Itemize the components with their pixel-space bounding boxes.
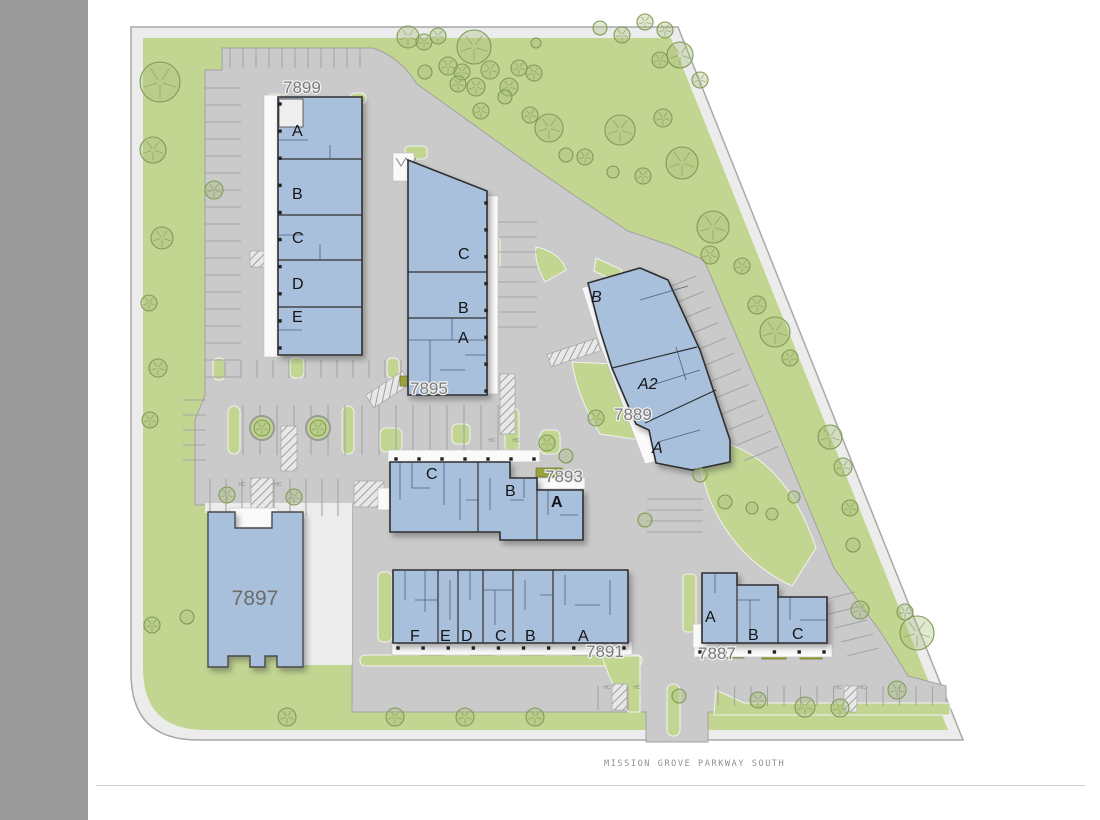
tree-icon <box>593 21 607 35</box>
tree-icon <box>614 27 630 43</box>
tree-icon <box>672 689 686 703</box>
column-dot <box>417 457 420 460</box>
column-dot <box>773 650 776 653</box>
hc-stall-label: HC <box>512 438 520 444</box>
tree-icon <box>577 149 593 165</box>
tree-icon <box>450 76 466 92</box>
column-dot <box>278 319 281 322</box>
tree-icon <box>750 692 766 708</box>
tree-icon <box>278 708 296 726</box>
tree-icon <box>254 420 270 436</box>
building-7895-number-label: 7895 <box>410 379 448 398</box>
tree-icon <box>149 359 167 377</box>
tree-icon <box>140 137 166 163</box>
tree-icon <box>588 410 604 426</box>
column-dot <box>278 129 281 132</box>
building-7897-number-label: 7897 <box>232 587 279 610</box>
column-dot <box>472 646 475 649</box>
tree-icon <box>498 90 512 104</box>
column-dot <box>798 650 801 653</box>
column-dot <box>484 362 487 365</box>
tree-icon <box>897 604 913 620</box>
column-dot <box>484 282 487 285</box>
unit-label: D <box>461 628 473 645</box>
site-plan-drawing: HCHCHCHCHCHCHCHC 7899 7895 7889 7893 789… <box>0 0 1100 820</box>
tree-icon <box>539 435 555 451</box>
tree-icon <box>693 468 707 482</box>
unit-label: A2 <box>637 376 658 393</box>
tree-icon <box>559 148 573 162</box>
tree-icon <box>746 502 758 514</box>
column-dot <box>497 646 500 649</box>
unit-label: F <box>410 628 420 645</box>
column-dot <box>509 457 512 460</box>
tree-icon <box>635 168 651 184</box>
tree-icon <box>697 211 729 243</box>
unit-label: E <box>440 628 451 645</box>
hc-stall-label: HC <box>603 685 611 691</box>
unit-label: C <box>495 628 507 645</box>
building-7891-footprint <box>393 570 628 643</box>
tree-icon <box>286 489 302 505</box>
tree-icon <box>522 107 538 123</box>
tree-icon <box>654 109 672 127</box>
building-7895-footprint <box>408 160 487 395</box>
column-dot <box>278 292 281 295</box>
tree-icon <box>666 147 698 179</box>
tree-icon <box>531 38 541 48</box>
tree-icon <box>831 699 849 717</box>
column-dot <box>484 255 487 258</box>
column-dot <box>547 646 550 649</box>
unit-label: A <box>578 628 589 645</box>
column-dot <box>396 646 399 649</box>
unit-label: B <box>458 300 469 317</box>
building-7893-number-label: 7893 <box>545 467 583 486</box>
tree-icon <box>818 425 842 449</box>
unit-label: A <box>292 123 303 140</box>
building-7887-number-label: 7887 <box>698 644 736 663</box>
street-name-label: MISSION GROVE PARKWAY SOUTH <box>604 759 785 769</box>
tree-icon <box>760 317 790 347</box>
tree-icon <box>842 500 858 516</box>
building-7899 <box>264 95 362 357</box>
tree-icon <box>638 513 652 527</box>
unit-label: C <box>792 626 804 643</box>
tree-icon <box>219 487 235 503</box>
tree-icon <box>748 296 766 314</box>
tree-icon <box>456 708 474 726</box>
hc-stall-label: HC <box>858 685 866 691</box>
tree-icon <box>467 78 485 96</box>
tree-icon <box>526 708 544 726</box>
column-dot <box>484 309 487 312</box>
column-dot <box>278 346 281 349</box>
building-7899-footprint <box>278 97 362 355</box>
tree-icon <box>667 42 693 68</box>
tree-icon <box>142 412 158 428</box>
column-dot <box>522 646 525 649</box>
tree-icon <box>782 350 798 366</box>
tree-icon <box>607 166 619 178</box>
site-plan-page: HCHCHCHCHCHCHCHC 7899 7895 7889 7893 789… <box>0 0 1100 820</box>
unit-label: A <box>458 330 469 347</box>
column-dot <box>532 457 535 460</box>
tree-icon <box>788 491 800 503</box>
tree-icon <box>205 181 223 199</box>
tree-icon <box>701 246 719 264</box>
column-dot <box>278 238 281 241</box>
unit-label: C <box>426 466 438 483</box>
tree-icon <box>851 601 869 619</box>
building-7899-number-label: 7899 <box>283 78 321 97</box>
column-dot <box>278 102 281 105</box>
tree-icon <box>766 508 778 520</box>
tree-icon <box>637 14 653 30</box>
plaza-walk <box>300 507 352 665</box>
column-dot <box>484 201 487 204</box>
column-dot <box>394 457 397 460</box>
tree-icon <box>652 52 668 68</box>
unit-label: C <box>458 246 470 263</box>
tree-icon <box>386 708 404 726</box>
tree-icon <box>657 22 673 38</box>
tree-icon <box>605 115 635 145</box>
tree-icon <box>397 26 419 48</box>
tree-icon <box>834 458 852 476</box>
tree-icon <box>141 295 157 311</box>
tree-icon <box>473 103 489 119</box>
tree-icon <box>481 61 499 79</box>
unit-label: E <box>292 309 303 326</box>
tree-icon <box>535 114 563 142</box>
tree-icon <box>846 538 860 552</box>
tree-icon <box>526 65 542 81</box>
column-dot <box>278 157 281 160</box>
column-dot <box>421 646 424 649</box>
tree-icon <box>144 617 160 633</box>
column-dot <box>440 457 443 460</box>
column-dot <box>748 650 751 653</box>
building-7889-number-label: 7889 <box>614 405 652 424</box>
unit-label: D <box>292 276 304 293</box>
column-dot <box>484 336 487 339</box>
building-7895 <box>393 153 498 395</box>
tree-icon <box>457 30 491 64</box>
column-dot <box>463 457 466 460</box>
hc-stall-label: HC <box>834 685 842 691</box>
unit-label: B <box>748 627 759 644</box>
column-dot <box>484 389 487 392</box>
column-dot <box>278 211 281 214</box>
column-dot <box>278 265 281 268</box>
hc-stall-label: HC <box>238 482 246 488</box>
tree-icon <box>559 449 573 463</box>
tree-icon <box>140 62 180 102</box>
column-dot <box>486 457 489 460</box>
unit-label: A <box>705 609 716 626</box>
tree-icon <box>180 610 194 624</box>
hc-stall-label: HC <box>488 438 496 444</box>
tree-icon <box>692 72 708 88</box>
unit-label: B <box>505 483 516 500</box>
unit-label: C <box>292 230 304 247</box>
tree-icon <box>418 65 432 79</box>
unit-label: B <box>292 186 303 203</box>
tree-icon <box>795 697 815 717</box>
column-dot <box>822 650 825 653</box>
unit-label: B <box>591 289 602 306</box>
tree-icon <box>900 616 934 650</box>
column-dot <box>572 646 575 649</box>
hc-stall-label: HC <box>274 482 282 488</box>
tree-icon <box>511 60 527 76</box>
unit-label: B <box>525 628 536 645</box>
column-dot <box>447 646 450 649</box>
tree-icon <box>888 681 906 699</box>
hc-stall-label: HC <box>633 685 641 691</box>
unit-label: A <box>551 494 563 511</box>
column-dot <box>278 184 281 187</box>
building-7891-number-label: 7891 <box>586 642 624 661</box>
tree-icon <box>151 227 173 249</box>
unit-label: A <box>651 440 663 457</box>
tree-icon <box>310 420 326 436</box>
tree-icon <box>734 258 750 274</box>
tree-icon <box>718 495 732 509</box>
column-dot <box>484 228 487 231</box>
tree-icon <box>430 28 446 44</box>
